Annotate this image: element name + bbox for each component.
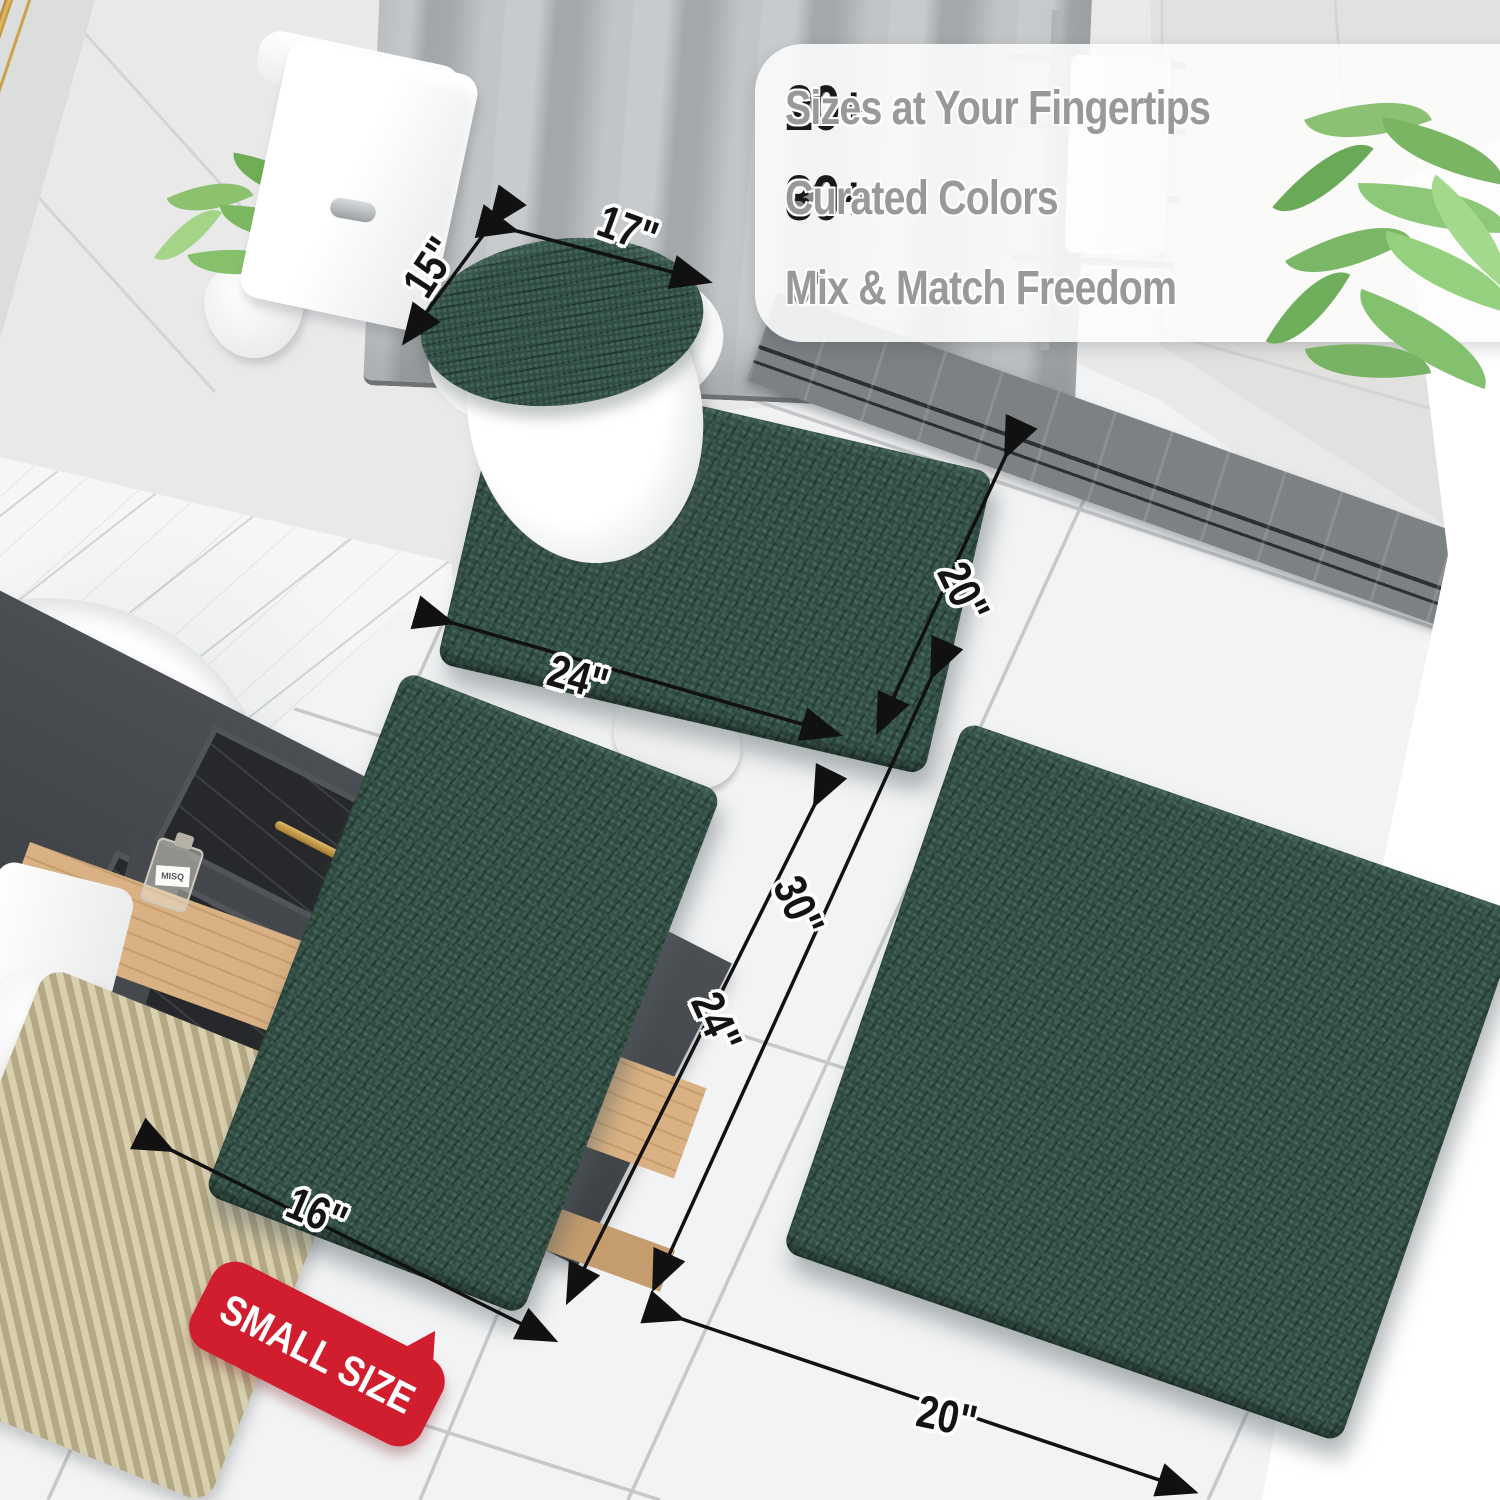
feature-text: Curated Colors	[785, 171, 1058, 226]
feature-text: Mix & Match Freedom	[785, 261, 1176, 316]
product-image: MISQ	[0, 0, 1500, 1500]
feature-text: Sizes at Your Fingertips	[785, 81, 1210, 136]
potted-plant	[1248, 88, 1500, 398]
